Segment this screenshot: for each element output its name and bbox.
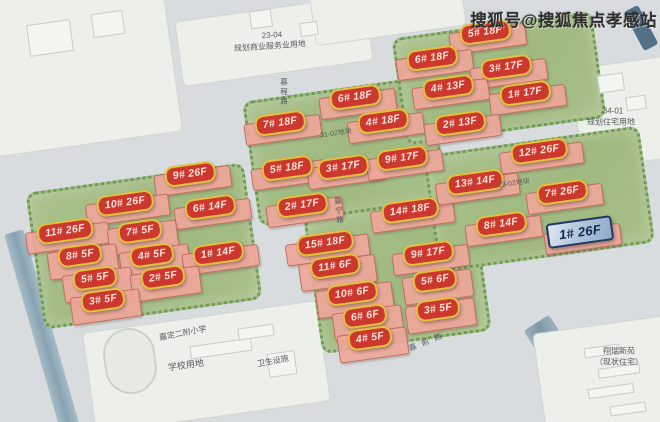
road-mucheng: 慕程路 [279, 78, 290, 107]
estate-status: （现状住宅） [595, 359, 643, 368]
watermark-text: 搜狐号@搜狐焦点孝感站 [470, 7, 657, 31]
plot-34-01-code: 34-01 [603, 108, 623, 117]
estate-name: 翔瑞新苑 [603, 348, 635, 357]
plot-34-01-use: 规划住宅用地 [587, 119, 635, 128]
site-plan-map: 9# 26F10# 26F6# 14F11# 26F7# 5F8# 5F4# 5… [0, 0, 660, 422]
building-outline [90, 10, 125, 38]
building-outline [26, 19, 74, 57]
plot-23-04-code: 23-04 [261, 31, 282, 41]
building-outline [249, 9, 273, 30]
building-outline [299, 21, 319, 37]
building-outline [625, 95, 647, 112]
building-outline [597, 72, 625, 93]
